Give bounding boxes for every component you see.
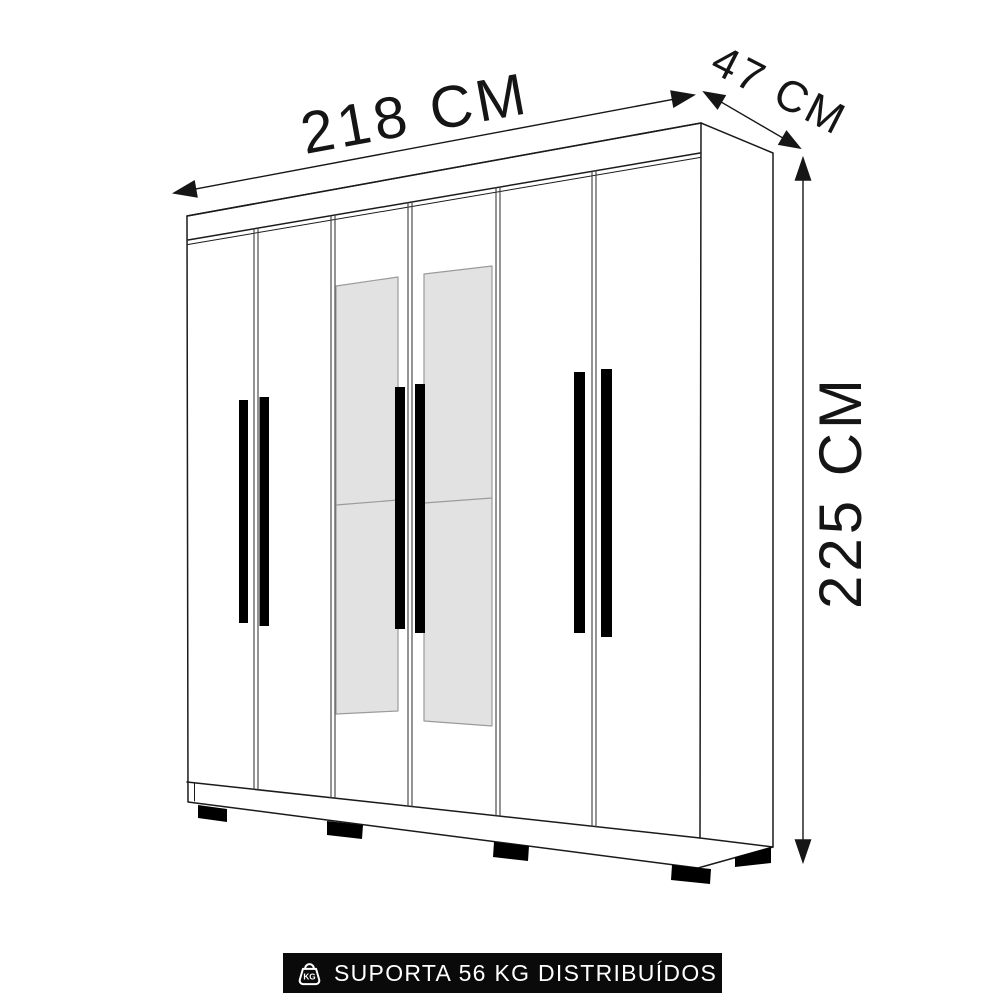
arrowhead-top [796, 158, 811, 180]
door-handle [260, 397, 270, 626]
door-handle [239, 400, 248, 623]
weight-icon-kg-text: KG [303, 972, 315, 981]
arrowhead-right [671, 91, 694, 107]
weight-capacity-text: SUPORTA 56 KG DISTRIBUÍDOS [334, 960, 717, 987]
wardrobe-drawing [187, 123, 773, 884]
height-dimension-label: 225 CM [811, 375, 871, 609]
weight-kg-icon: KG [294, 959, 325, 987]
arrowhead-left [174, 181, 197, 197]
foot [671, 865, 711, 884]
front-right-edge [700, 123, 701, 838]
door-handle [415, 384, 425, 633]
door-handle [395, 387, 405, 629]
dimension-diagram: 218 CM 47 CM 225 CM KG SUPORTA 56 KG DIS… [0, 0, 1000, 1000]
mirror-right-panel [424, 266, 492, 726]
foot [198, 805, 227, 822]
arrowhead-bottom [796, 840, 811, 862]
weight-capacity-banner: KG SUPORTA 56 KG DISTRIBUÍDOS [283, 953, 722, 993]
door-handle [601, 369, 612, 637]
mirror-left-panel [336, 277, 398, 714]
arrowhead-upper [704, 92, 725, 109]
door-handle [574, 372, 585, 633]
arrowhead-lower [779, 131, 800, 148]
